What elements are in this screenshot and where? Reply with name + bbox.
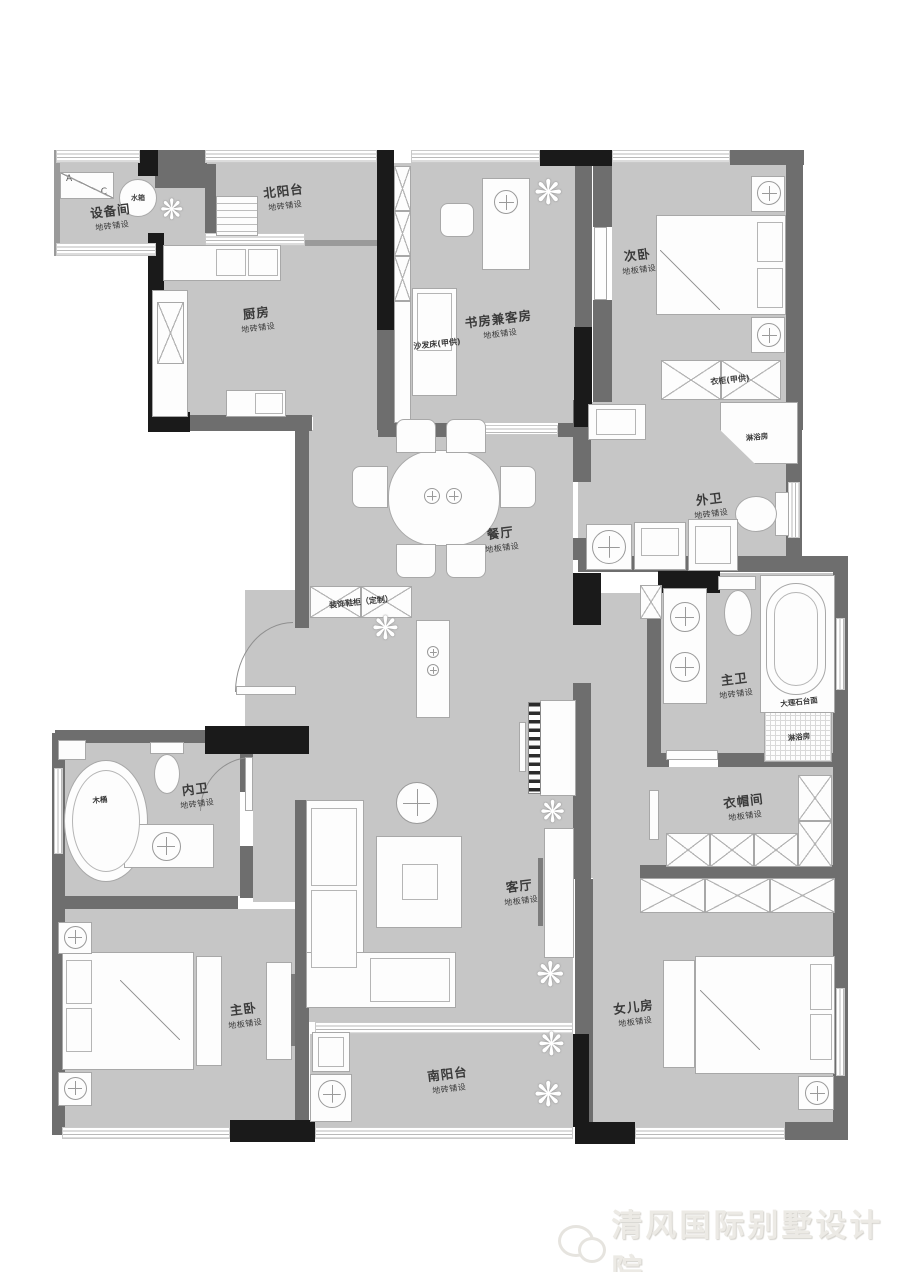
nightstand-lamp (757, 181, 781, 205)
fixture-label-guest-shower: 淋浴房 (745, 430, 769, 443)
window (56, 150, 140, 163)
wardrobe (754, 833, 798, 867)
coffee-table-tray (402, 864, 438, 900)
vanity-sink (670, 652, 700, 682)
stove (157, 302, 184, 364)
nightstand-lamp (64, 1077, 87, 1100)
dining-chair (396, 544, 436, 578)
wardrobe (705, 878, 770, 913)
corridor-floor (591, 593, 647, 878)
sofa-cushion (370, 958, 450, 1002)
room-label-daughter-room: 女儿房 地板铺设 (612, 994, 656, 1030)
plant-icon: ❋ (534, 176, 563, 210)
toilet-tank (718, 576, 756, 590)
cabinet-knob (427, 664, 439, 676)
plant-icon: ❋ (534, 1078, 563, 1112)
room-label-master-bedroom: 主卧 地板铺设 (225, 997, 263, 1032)
side-stool (396, 782, 438, 824)
wall (205, 164, 216, 234)
wall (575, 163, 592, 327)
room-label-guest-bathroom: 外卫 地砖铺设 (691, 487, 729, 522)
mop-basin-inner (695, 526, 731, 564)
duvet-fold (120, 980, 180, 1040)
washer-drum (592, 530, 626, 564)
water-heater (216, 196, 258, 236)
dining-chair (446, 419, 486, 453)
wall (573, 1034, 589, 1127)
entry-door-leaf (236, 686, 296, 695)
room-label-south-balcony: 南阳台 地砖铺设 (426, 1061, 470, 1097)
door-leaf (666, 750, 718, 760)
door-leaf (594, 227, 607, 300)
watermark: 清风国际别墅设计院 (558, 1200, 900, 1272)
tv (538, 858, 543, 926)
room-label-second-bedroom: 次卧 地板铺设 (619, 243, 657, 278)
wall (785, 1122, 848, 1140)
wall (786, 164, 803, 430)
toilet-bowl (735, 496, 777, 532)
kitchen-sink (216, 249, 246, 276)
pillow (757, 222, 783, 262)
sofa-cushion (311, 808, 357, 886)
wardrobe (710, 833, 754, 867)
room-label-master-bathroom: 主卫 地砖铺设 (716, 667, 754, 702)
bath-cabinet (640, 585, 662, 619)
wooden-tub-inner (72, 770, 140, 872)
tv-cabinet (266, 962, 292, 1060)
plant-icon: ❋ (536, 958, 565, 992)
toilet-bowl (154, 754, 180, 794)
counter-basin (641, 528, 679, 556)
fixture-label-master-shower: 淋浴房 (787, 730, 811, 743)
window (56, 243, 156, 256)
plant-icon: ❋ (372, 612, 399, 644)
pillow (810, 964, 832, 1010)
door-leaf (245, 757, 253, 811)
plant-icon: ❋ (540, 798, 565, 828)
wall (730, 150, 804, 165)
window (635, 1127, 785, 1139)
window (54, 768, 63, 854)
window (205, 150, 377, 163)
wall (230, 1120, 315, 1142)
toilet-bowl (724, 590, 752, 636)
room-label-kitchen: 厨房 地砖铺设 (238, 301, 276, 336)
dining-chair (396, 419, 436, 453)
window (315, 1127, 573, 1139)
wardrobe (640, 878, 705, 913)
wardrobe (798, 775, 832, 821)
entry-door-swing (235, 622, 293, 692)
dining-chair (446, 544, 486, 578)
wardrobe (666, 833, 710, 867)
vanity-sink (670, 602, 700, 632)
desk-chair (440, 203, 474, 237)
duvet-fold (700, 990, 760, 1050)
fixture-label-wooden-tub: 木桶 (92, 794, 108, 807)
room-label-inner-bathroom: 内卫 地砖铺设 (177, 777, 215, 812)
study-cabinet (394, 211, 411, 256)
vanity-sink (152, 832, 181, 861)
toilet-tank (150, 742, 184, 754)
wall (377, 330, 394, 430)
water-tank-label: 水箱 (131, 193, 145, 203)
kitchen-cabinet-door (255, 393, 283, 414)
study-cabinet (394, 256, 411, 301)
sofa-cushion (311, 890, 357, 968)
wall (55, 896, 238, 909)
kitchen-sink (248, 249, 278, 276)
table-decor (424, 488, 440, 504)
nightstand-lamp (805, 1081, 829, 1105)
wall (138, 150, 158, 176)
room-label-equipment: 设备间 地砖铺设 (89, 198, 133, 234)
study-cabinet (394, 166, 411, 211)
ac-unit: A C (60, 172, 114, 199)
piano-keys (528, 702, 541, 794)
wall (205, 726, 309, 754)
duvet-fold (660, 250, 720, 310)
window (62, 1127, 230, 1139)
bed-bench (196, 956, 222, 1066)
wardrobe (798, 821, 832, 867)
laundry-sink-basin (318, 1037, 344, 1067)
sliding-door (315, 1022, 573, 1034)
room-label-living: 客厅 地板铺设 (501, 874, 539, 909)
window (612, 150, 730, 163)
wall (575, 1122, 635, 1144)
washer-drum (318, 1080, 346, 1108)
wall (540, 150, 612, 166)
bath-shelf (58, 740, 86, 760)
pillow (810, 1014, 832, 1060)
ac-diagonal (61, 173, 113, 198)
desk-lamp (494, 190, 518, 214)
wall (593, 163, 612, 227)
corridor-passage-floor (573, 623, 591, 683)
cabinet-knob (427, 646, 439, 658)
plant-icon: ❋ (160, 196, 183, 224)
wall (155, 150, 207, 188)
pillow (66, 1008, 92, 1052)
window (788, 482, 800, 538)
wall (377, 150, 394, 330)
dining-chair (352, 466, 388, 508)
wechat-logo-icon (558, 1225, 601, 1265)
plant-icon: ❋ (538, 1028, 565, 1060)
room-label-cloakroom: 衣帽间 地板铺设 (722, 788, 766, 824)
floor-plan: A C 水箱 ❋ ❋ (0, 0, 900, 1272)
window (411, 150, 540, 163)
kitchen-passage-floor (313, 417, 378, 430)
desk (663, 960, 695, 1068)
wall (54, 150, 60, 256)
pillow (757, 268, 783, 308)
nightstand-lamp (757, 323, 781, 347)
nightstand-lamp (64, 926, 87, 949)
wall (295, 430, 309, 628)
bathroom-sink (596, 409, 636, 435)
wall (593, 300, 612, 402)
study-cabinet (394, 301, 411, 423)
piano (540, 700, 576, 796)
bathtub-inner (774, 592, 818, 686)
wall (573, 573, 601, 625)
study-sliding-door (478, 425, 558, 435)
window (836, 988, 845, 1076)
door-leaf (649, 790, 659, 840)
room-label-north-balcony: 北阳台 地砖铺设 (262, 178, 306, 214)
pillow (66, 960, 92, 1004)
tv (291, 974, 295, 1046)
table-decor (446, 488, 462, 504)
piano-bench (519, 722, 526, 772)
tv-cabinet (544, 828, 574, 958)
wardrobe (770, 878, 835, 913)
window (836, 618, 845, 690)
wall (240, 846, 253, 898)
dining-chair (500, 466, 536, 508)
watermark-text: 清风国际别墅设计院 (611, 1200, 900, 1272)
room-label-dining: 餐厅 地板铺设 (482, 521, 520, 556)
toilet-tank (775, 492, 789, 536)
